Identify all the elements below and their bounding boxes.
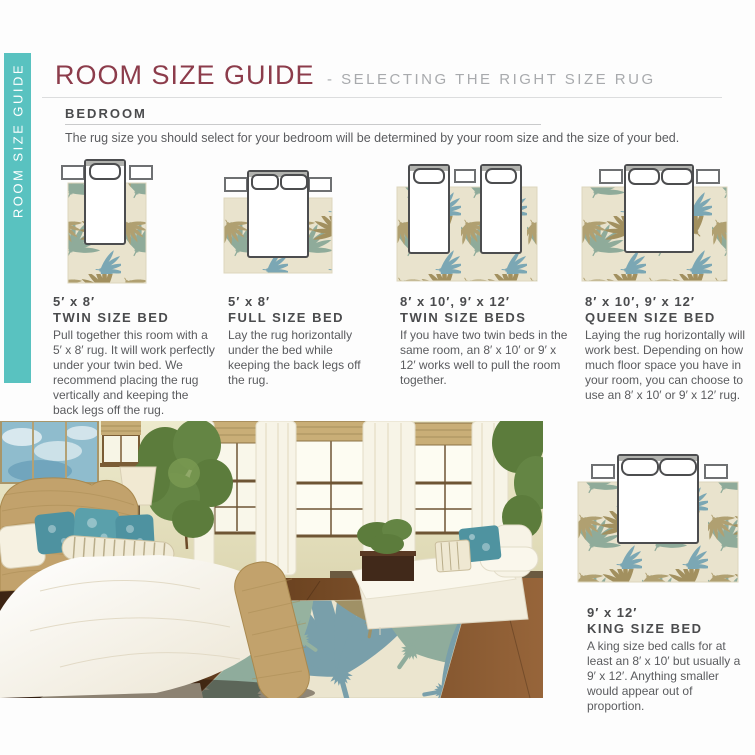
guide-description: Lay the rug horizontally under the bed w… bbox=[228, 328, 378, 388]
bed-type-label: KING SIZE BED bbox=[587, 621, 747, 636]
rug-size-label: 5′ x 8′ bbox=[228, 294, 378, 309]
bedroom-photo bbox=[0, 421, 543, 698]
diagram-two-twin-beds bbox=[395, 158, 540, 283]
guide-description: Laying the rug horizontally will work be… bbox=[585, 328, 747, 403]
room-size-guide-page: ROOM SIZE GUIDE ROOM SIZE GUIDE - SELECT… bbox=[0, 0, 755, 755]
section-intro: The rug size you should select for your … bbox=[65, 131, 725, 145]
diagram-king-bed bbox=[576, 453, 741, 584]
window-small bbox=[100, 421, 142, 467]
side-tab-label: ROOM SIZE GUIDE bbox=[11, 46, 26, 236]
bed-type-label: TWIN SIZE BEDS bbox=[400, 310, 568, 325]
page-subtitle: - SELECTING THE RIGHT SIZE RUG bbox=[327, 71, 656, 88]
bed-type-label: FULL SIZE BED bbox=[228, 310, 378, 325]
windows bbox=[212, 421, 478, 536]
guide-twin-text: 5′ x 8′ TWIN SIZE BED Pull together this… bbox=[53, 294, 217, 418]
guide-two-twins-text: 8′ x 10′, 9′ x 12′ TWIN SIZE BEDS If you… bbox=[400, 294, 568, 388]
guide-queen-text: 8′ x 10′, 9′ x 12′ QUEEN SIZE BED Laying… bbox=[585, 294, 747, 403]
diagram-full-bed bbox=[222, 158, 334, 276]
side-tab: ROOM SIZE GUIDE bbox=[4, 53, 31, 383]
rug-size-label: 5′ x 8′ bbox=[53, 294, 217, 309]
guide-description: Pull together this room with a 5′ x 8′ r… bbox=[53, 328, 217, 418]
header-divider bbox=[42, 97, 722, 98]
guide-description: If you have two twin beds in the same ro… bbox=[400, 328, 568, 388]
guide-description: A king size bed calls for at least an 8′… bbox=[587, 639, 747, 714]
diagram-twin-bed bbox=[55, 158, 155, 284]
guide-king-text: 9′ x 12′ KING SIZE BED A king size bed c… bbox=[587, 605, 747, 714]
section-heading: BEDROOM bbox=[65, 106, 147, 121]
rug-size-label: 8′ x 10′, 9′ x 12′ bbox=[400, 294, 568, 309]
page-title: ROOM SIZE GUIDE bbox=[55, 60, 315, 90]
rug-size-label: 9′ x 12′ bbox=[587, 605, 747, 620]
diagram-queen-bed bbox=[580, 158, 730, 283]
rug-size-label: 8′ x 10′, 9′ x 12′ bbox=[585, 294, 747, 309]
wall-art bbox=[0, 421, 99, 484]
guide-full-text: 5′ x 8′ FULL SIZE BED Lay the rug horizo… bbox=[228, 294, 378, 388]
page-header: ROOM SIZE GUIDE - SELECTING THE RIGHT SI… bbox=[55, 60, 656, 91]
section-divider bbox=[65, 124, 541, 125]
bed-type-label: QUEEN SIZE BED bbox=[585, 310, 747, 325]
bed-type-label: TWIN SIZE BED bbox=[53, 310, 217, 325]
